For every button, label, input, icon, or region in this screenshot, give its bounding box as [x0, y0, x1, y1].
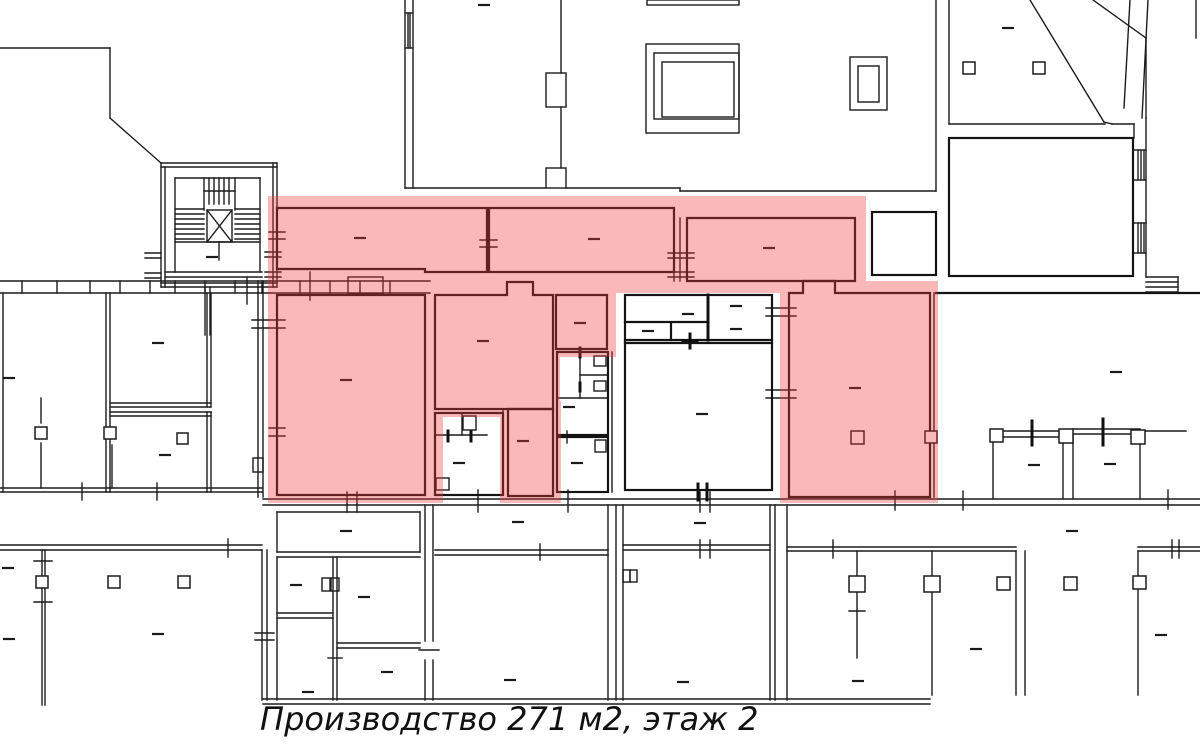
- floor-plan-svg: [0, 0, 1200, 745]
- floor-plan: Производство 271 м2, этаж 2: [0, 0, 1200, 745]
- caption-label: Производство 271 м2, этаж 2: [260, 700, 960, 738]
- highlight-overlay: [268, 196, 938, 503]
